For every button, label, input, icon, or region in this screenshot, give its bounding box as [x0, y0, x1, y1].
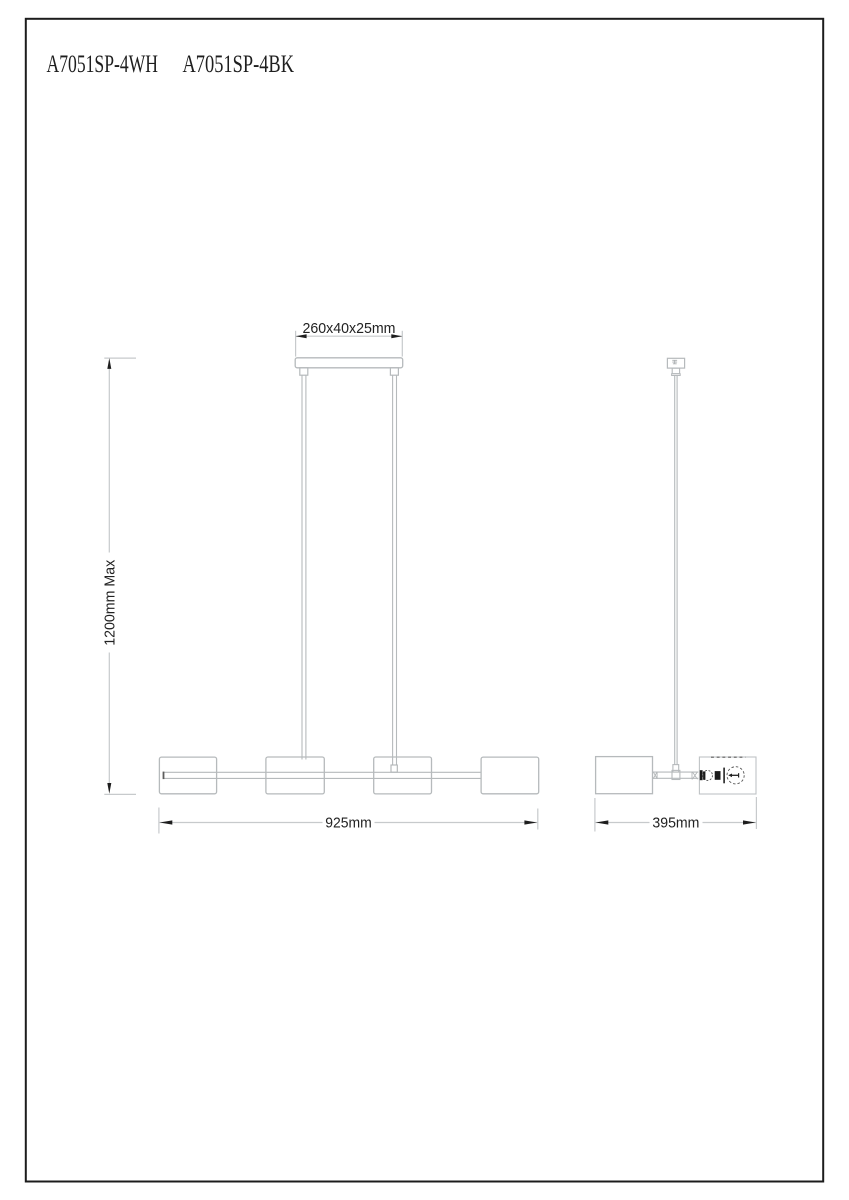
svg-text:260x40x25mm: 260x40x25mm — [303, 321, 396, 337]
svg-text:1200mm Max: 1200mm Max — [103, 559, 119, 646]
svg-text:A7051SP-4BK: A7051SP-4BK — [183, 51, 295, 78]
svg-text:925mm: 925mm — [325, 816, 372, 832]
svg-text:A7051SP-4WH: A7051SP-4WH — [47, 51, 159, 78]
svg-text:395mm: 395mm — [652, 816, 699, 832]
